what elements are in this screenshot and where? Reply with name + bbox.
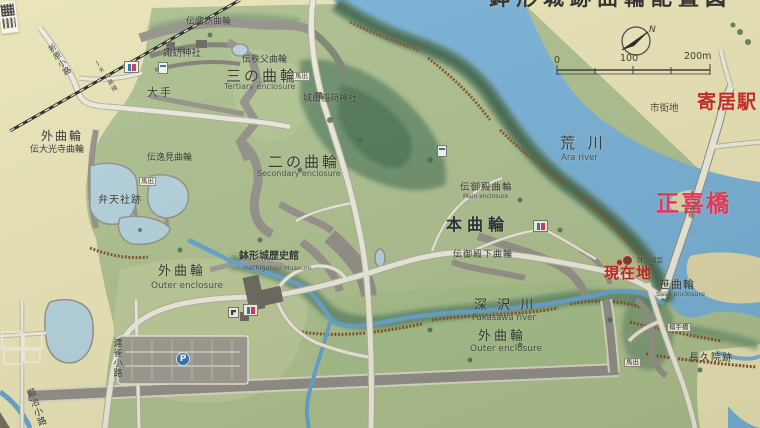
- fukasawa-gawa-en: Fukasawa river: [472, 314, 536, 323]
- chichibu-kuruwa: 伝秩父曲輪: [242, 56, 287, 65]
- museum: 鉢形城歴史館: [239, 252, 299, 262]
- soto-kuruwa-s: 外曲輪: [478, 330, 526, 343]
- compass-icon: [622, 27, 650, 55]
- scale-tick-100: 100: [620, 53, 638, 64]
- ni-no-kuruwa-en: Secondary enclosure: [257, 170, 341, 178]
- daikoji-kuruwa: 伝大光寺曲輪: [30, 146, 84, 155]
- yorii-station: 寄居駅: [697, 93, 757, 112]
- renjaku-koji: 連雀小路: [111, 338, 120, 378]
- hon-kuruwa: 本曲輪: [446, 217, 509, 233]
- fukasawa-gawa: 深 沢 川: [474, 299, 536, 312]
- viewpoint-marker: [437, 145, 447, 157]
- scale-tick-200m: 200m: [684, 51, 711, 62]
- toilet-icon-honkuruwa: [533, 220, 548, 232]
- umadashi-se: 馬出: [624, 358, 641, 367]
- faucet-icon-museum: [228, 307, 239, 318]
- san-no-kuruwa-en: Tertiary enclosure: [224, 83, 295, 91]
- genzaichi: 現在地: [604, 266, 652, 281]
- shiroyama-inari-jinja: 城山稲荷神社: [303, 95, 357, 104]
- toilet-icon-suwa: [124, 61, 139, 73]
- karamete-bashi: 搦手橋: [667, 323, 691, 332]
- den-suwa-kuruwa: 伝諏訪曲輪: [186, 18, 231, 27]
- chokyuin-ato: 長久院跡: [689, 354, 733, 364]
- shigaichi: 市街地: [650, 104, 679, 114]
- arakawa: 荒 川: [560, 136, 607, 151]
- model-note: 鉢形模型: [637, 257, 663, 264]
- soto-kuruwa-w: 外曲輪: [158, 265, 206, 278]
- sasa-kuruwa-en: Sasa enclosure: [656, 291, 705, 298]
- umadashi-n: 馬出: [293, 72, 310, 81]
- ote: 大手: [147, 87, 173, 98]
- gotenshita-kuruwa: 伝御殿下曲輪: [453, 251, 513, 260]
- toilet-icon-museum: [243, 304, 258, 316]
- ni-no-kuruwa: 二の曲輪: [268, 155, 340, 170]
- castle-map-sign-photo: N 0 100 200m 鉢形城跡曲輪配置図寄居駅市街地荒 川Ara river…: [0, 0, 760, 428]
- guide-sign-icon-suwa: [158, 62, 168, 74]
- arakawa-en: Ara river: [561, 154, 598, 163]
- soto-kuruwa-w-en: Outer enclosure: [151, 282, 223, 291]
- benten-sha-ato: 弁天社跡: [98, 196, 142, 206]
- henmi-kuruwa: 伝逸見曲輪: [147, 154, 192, 163]
- scale-tick-0: 0: [554, 55, 560, 66]
- soto-kuruwa-nw: 外曲輪: [41, 130, 83, 142]
- parking-icon: P: [176, 352, 190, 366]
- sasa-kuruwa: 笹曲輪: [659, 279, 695, 290]
- goten-kuruwa: 伝御殿曲輪: [460, 183, 513, 193]
- compass-north-label: N: [649, 25, 656, 35]
- map-title: 鉢形城跡曲輪配置図: [489, 0, 732, 9]
- umadashi-w: 馬出: [139, 177, 156, 186]
- soto-kuruwa-s-en: Outer enclosure: [470, 345, 542, 354]
- suwa-jinja: 諏訪神社: [163, 49, 201, 59]
- goten-kuruwa-en: Main enclosure: [463, 194, 508, 200]
- museum-en: Hachigatajo Museum: [243, 265, 311, 272]
